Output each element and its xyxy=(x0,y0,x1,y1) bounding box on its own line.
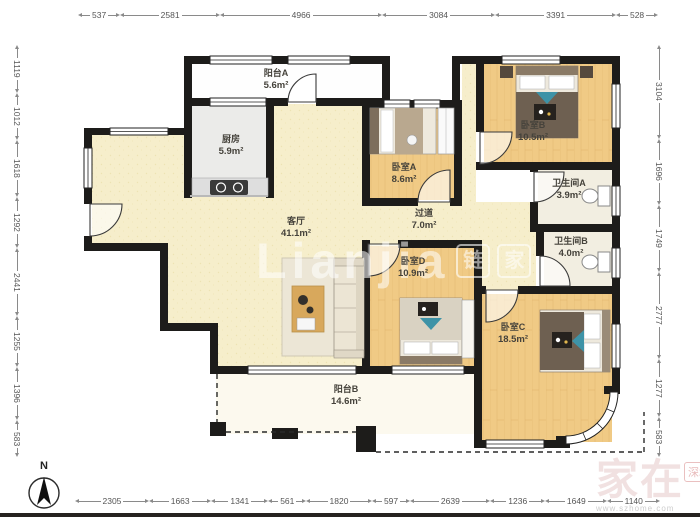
floor-plan-drawing xyxy=(0,0,700,522)
window xyxy=(612,324,620,368)
north-arrow: N xyxy=(22,461,66,520)
north-label: N xyxy=(22,461,66,471)
bed-icon-bedroom-d xyxy=(400,298,474,364)
room-label-balcony-a: 阳台A5.6m² xyxy=(264,68,289,92)
room-label-bathroom-b: 卫生间B4.0m² xyxy=(554,236,588,260)
room-label-corridor: 过道7.0m² xyxy=(412,208,437,232)
window xyxy=(110,128,168,135)
room-label-bathroom-a: 卫生间A3.9m² xyxy=(552,178,586,202)
window xyxy=(84,148,92,188)
room-label-bedroom-a: 卧室A8.6m² xyxy=(392,162,417,186)
room-label-living: 客厅41.1m² xyxy=(281,216,311,240)
room-label-balcony-b: 阳台B14.6m² xyxy=(331,384,361,408)
window xyxy=(384,100,410,108)
window xyxy=(210,98,266,106)
window xyxy=(210,56,272,64)
compass-icon xyxy=(22,471,66,515)
window xyxy=(414,100,440,108)
window xyxy=(288,56,350,64)
sofa-icon xyxy=(334,258,364,358)
bottom-border-bar xyxy=(0,513,700,517)
kitchen-counter xyxy=(190,178,268,196)
corridor-floor-2 xyxy=(482,244,536,290)
room-label-bedroom-d: 卧室D10.9m² xyxy=(398,256,428,280)
room-label-bedroom-c: 卧室C18.5m² xyxy=(498,322,528,346)
bed-icon-bedroom-c xyxy=(540,310,610,372)
window xyxy=(502,56,560,64)
corridor-strip-floor xyxy=(462,63,476,203)
corridor-floor xyxy=(362,202,538,246)
room-label-kitchen: 厨房5.9m² xyxy=(219,134,244,158)
room-label-bedroom-b: 卧室B10.5m² xyxy=(518,120,548,144)
living-room-furniture xyxy=(282,258,364,358)
bed-icon-bedroom-a xyxy=(370,108,454,154)
window xyxy=(612,84,620,128)
window xyxy=(612,248,620,278)
window xyxy=(486,440,544,448)
window xyxy=(392,366,464,374)
window xyxy=(612,186,620,216)
wardrobe-icon xyxy=(462,300,474,358)
floorplan-page: 537 2581 4966 3084 3391 528 2305 1663 13… xyxy=(0,0,700,522)
balcony-sliding-door xyxy=(248,366,356,374)
